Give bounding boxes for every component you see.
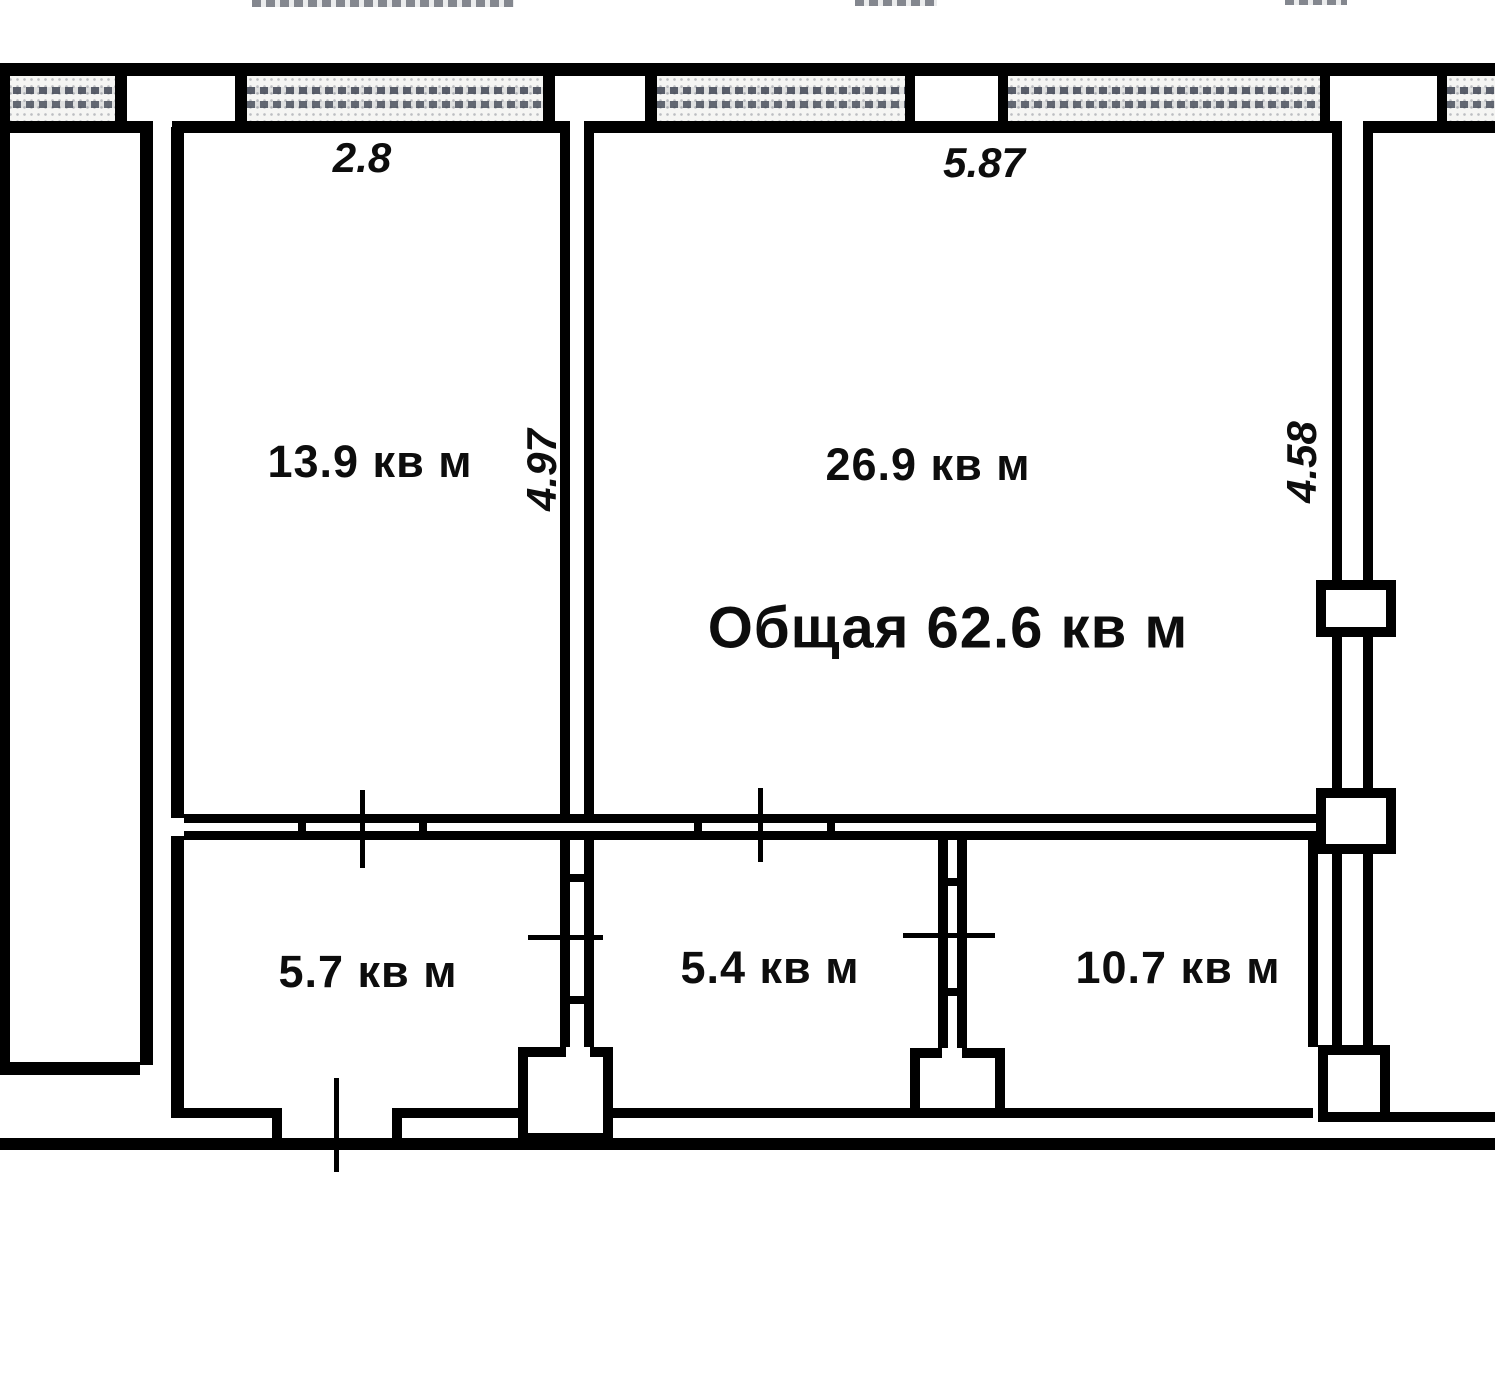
wall-party-inner-upper (171, 127, 184, 818)
door-tick-room1-room3 (360, 790, 365, 868)
wall-neighbor-left-edge (0, 63, 10, 1075)
door-jamb (694, 814, 702, 840)
door-jamb (298, 814, 306, 840)
wall-party-outer (140, 127, 153, 1065)
wall-corridor-long (0, 1138, 1495, 1150)
wall-middle-lower-line (184, 831, 1320, 840)
wall-room3-room4-right-line (584, 840, 594, 1048)
pilaster-right-lower (1318, 1045, 1390, 1122)
wall-room1-room2-right-line (584, 127, 594, 820)
door-tick-room3-corridor (334, 1078, 339, 1172)
wall-room4-room5-left-line (938, 840, 948, 1048)
pier-channel-cut (566, 1047, 590, 1057)
wall-room4-bottom (613, 1108, 910, 1118)
wall-room5-right-face (1308, 832, 1318, 1047)
dimension-label-2-8: 2.8 (333, 134, 391, 182)
wall-room4-room5-right-line (957, 840, 967, 1048)
door-jamb (419, 814, 427, 840)
pilaster-right-upper (1316, 580, 1396, 637)
wall-top-innerface-d (1363, 121, 1495, 133)
window-hatch-1 (0, 76, 115, 121)
door-tick-room3-room4 (528, 935, 603, 940)
door-jamb (560, 874, 594, 882)
wall-exterior-top (0, 63, 1495, 76)
pier-bottom-2 (910, 1048, 1005, 1118)
window-hatch-5 (1447, 76, 1495, 121)
wall-room5-bottom (1005, 1108, 1313, 1118)
window-hatch-2 (247, 76, 543, 121)
total-area-label: Общая 62.6 кв м (708, 595, 1189, 662)
pier-channel-cut (942, 1048, 962, 1058)
dimension-label-5-87: 5.87 (943, 139, 1025, 187)
dimension-label-4-58: 4.58 (1278, 421, 1326, 503)
wall-neighbor-bottom (0, 1062, 140, 1075)
wall-top-innerface-a (0, 121, 153, 133)
door-tick-room2-room4 (758, 788, 763, 862)
wall-middle-upper-line (184, 814, 1320, 823)
wall-room3-room4-left-line (560, 840, 570, 1048)
wall-party-inner-lower (171, 836, 184, 1118)
pilaster-right-middle (1316, 788, 1396, 854)
scan-artifact-top-middle (855, 0, 937, 6)
scan-artifact-top-right (1285, 0, 1347, 5)
room-area-label-5-7: 5.7 кв м (278, 946, 457, 998)
door-tick-room4-room5 (903, 933, 995, 938)
wall-balcony-bottom (1390, 1112, 1495, 1122)
window-hatch-4 (1008, 76, 1320, 121)
dimension-label-4-97: 4.97 (518, 429, 566, 511)
door-jamb (560, 996, 594, 1004)
wall-room3-bottom-b (392, 1108, 518, 1118)
door-jamb (827, 814, 835, 840)
room-area-label-26-9: 26.9 кв м (825, 439, 1030, 491)
door-jamb (938, 988, 967, 996)
door-jamb (938, 878, 967, 886)
wall-top-innerface-c (584, 121, 1342, 133)
window-hatch-3 (657, 76, 905, 121)
pier-bottom-1 (518, 1047, 613, 1143)
room-area-label-10-7: 10.7 кв м (1075, 942, 1280, 994)
floor-plan: 2.8 5.87 4.97 4.58 13.9 кв м 26.9 кв м О… (0, 0, 1495, 1394)
wall-room3-bottom-a (171, 1108, 282, 1118)
room-area-label-13-9: 13.9 кв м (267, 436, 472, 488)
scan-artifact-top-left (252, 0, 514, 7)
wall-top-innerface-b (172, 121, 570, 133)
room-area-label-5-4: 5.4 кв м (680, 942, 859, 994)
